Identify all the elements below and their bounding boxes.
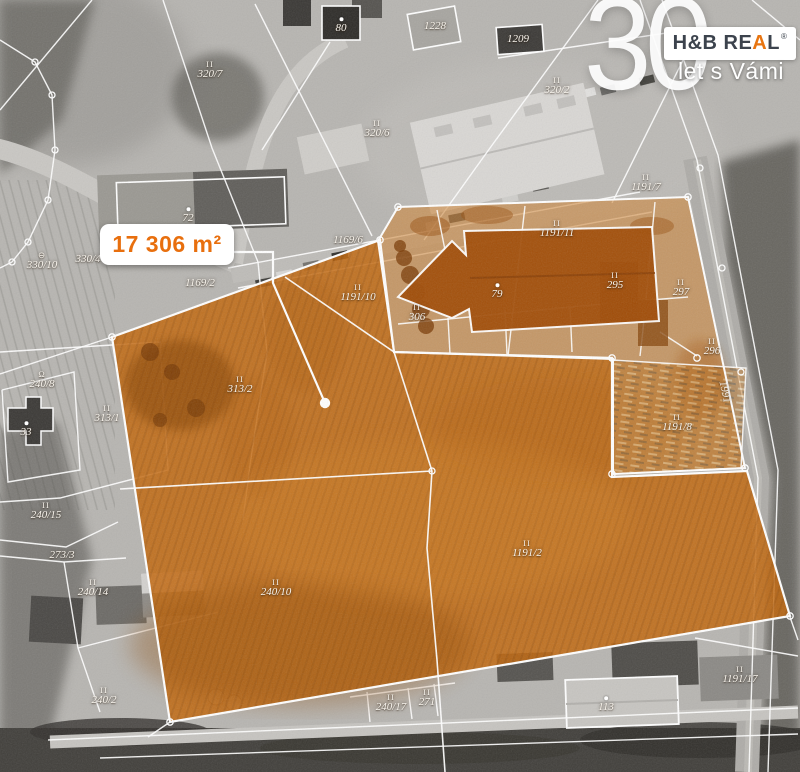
- logo-accent-letter: A: [752, 32, 767, 55]
- logo: H&B REAL®: [664, 27, 796, 60]
- logo-tagline: let s Vámi: [666, 58, 796, 85]
- real-estate-aerial-view: II320/78012281209II320/2II320/6II1191/7⊖…: [0, 0, 800, 772]
- logo-text-pre: H&B RE: [673, 32, 753, 55]
- area-callout: 17 306 m²: [100, 224, 234, 265]
- area-value: 17 306 m²: [112, 231, 221, 258]
- logo-text-post: L: [767, 32, 780, 55]
- registered-mark: ®: [781, 32, 787, 41]
